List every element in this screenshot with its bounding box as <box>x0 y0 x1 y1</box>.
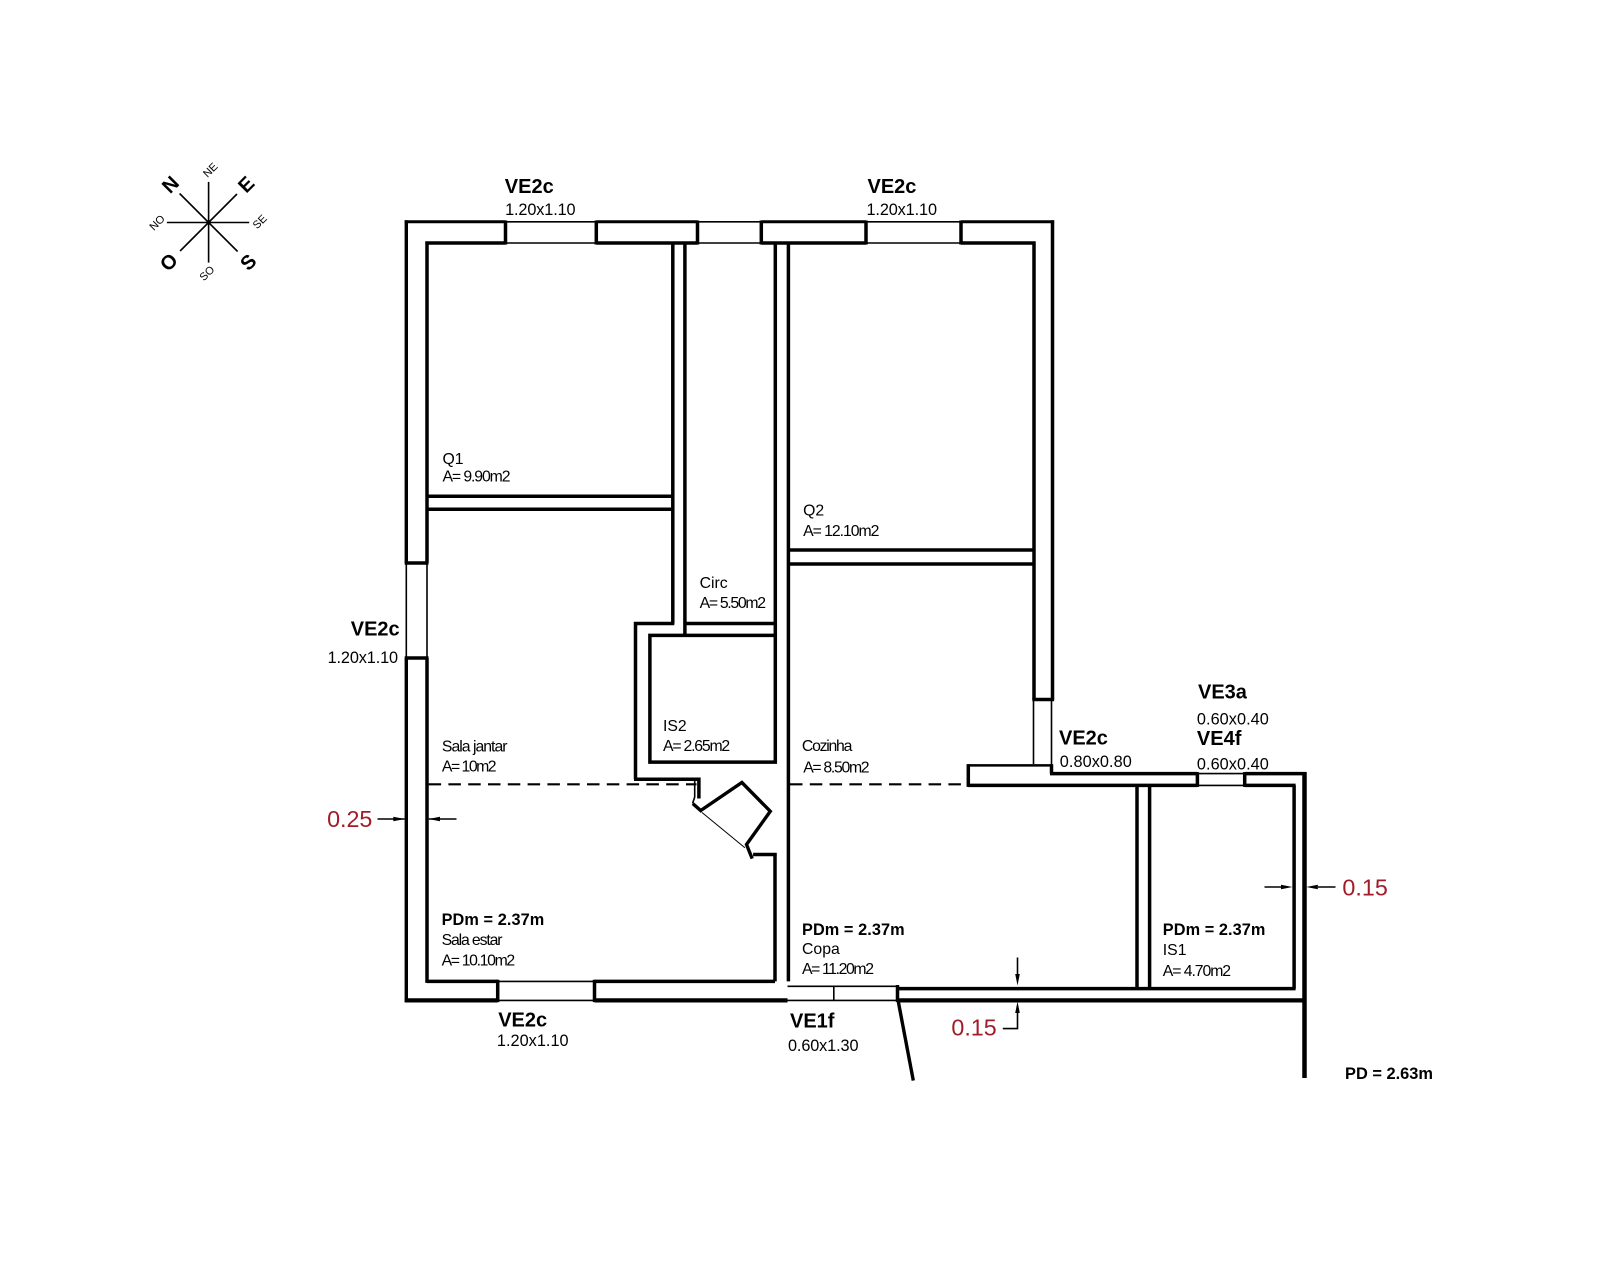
svg-text:PDm = 2.37m: PDm = 2.37m <box>802 921 905 939</box>
svg-text:A= 11.20m2: A= 11.20m2 <box>802 961 874 978</box>
svg-text:Sala estar: Sala estar <box>442 932 503 949</box>
svg-text:NO: NO <box>148 213 168 233</box>
svg-text:S: S <box>236 250 261 275</box>
svg-text:A= 5.50m2: A= 5.50m2 <box>700 595 766 612</box>
svg-text:A= 2.65m2: A= 2.65m2 <box>663 738 730 755</box>
svg-text:0.80x0.80: 0.80x0.80 <box>1060 753 1132 771</box>
svg-text:VE2c: VE2c <box>505 176 554 198</box>
svg-text:NE: NE <box>201 161 220 180</box>
svg-text:1.20x1.10: 1.20x1.10 <box>328 649 399 667</box>
svg-text:1.20x1.10: 1.20x1.10 <box>867 201 938 219</box>
svg-text:0.15: 0.15 <box>951 1015 996 1041</box>
svg-text:1.20x1.10: 1.20x1.10 <box>505 201 575 219</box>
svg-text:A= 9.90m2: A= 9.90m2 <box>443 469 511 486</box>
svg-text:0.25: 0.25 <box>327 806 372 832</box>
svg-text:IS1: IS1 <box>1163 942 1187 959</box>
svg-text:PDm = 2.37m: PDm = 2.37m <box>1163 921 1266 939</box>
svg-text:SE: SE <box>251 213 270 232</box>
svg-text:0.15: 0.15 <box>1342 875 1388 901</box>
svg-text:VE3a: VE3a <box>1198 682 1248 704</box>
svg-text:VE4f: VE4f <box>1197 728 1242 750</box>
svg-text:VE2c: VE2c <box>1059 728 1108 750</box>
svg-text:Cozinha: Cozinha <box>802 738 853 755</box>
svg-text:VE2c: VE2c <box>498 1010 547 1032</box>
svg-text:SO: SO <box>198 264 218 284</box>
svg-text:A= 4.70m2: A= 4.70m2 <box>1163 963 1231 980</box>
svg-text:0.60x1.30: 0.60x1.30 <box>788 1037 859 1055</box>
svg-text:Q1: Q1 <box>443 451 464 468</box>
svg-text:0.60x0.40: 0.60x0.40 <box>1197 711 1269 729</box>
svg-text:A= 8.50m2: A= 8.50m2 <box>803 759 869 776</box>
svg-text:VE1f: VE1f <box>790 1011 835 1033</box>
svg-text:PD = 2.63m: PD = 2.63m <box>1345 1065 1433 1083</box>
svg-text:A= 10m2: A= 10m2 <box>442 759 497 776</box>
svg-text:Sala jantar: Sala jantar <box>442 739 508 756</box>
svg-text:A= 10.10m2: A= 10.10m2 <box>442 953 516 970</box>
svg-text:VE2c: VE2c <box>351 619 400 641</box>
svg-text:A= 12.10m2: A= 12.10m2 <box>803 523 879 540</box>
svg-text:Copa: Copa <box>802 941 840 958</box>
svg-text:PDm = 2.37m: PDm = 2.37m <box>442 911 545 929</box>
svg-text:1.20x1.10: 1.20x1.10 <box>497 1032 569 1050</box>
svg-text:E: E <box>234 173 259 198</box>
svg-text:O: O <box>156 249 183 276</box>
svg-text:VE2c: VE2c <box>868 176 917 198</box>
svg-text:IS2: IS2 <box>663 718 687 735</box>
svg-text:Circ: Circ <box>700 575 728 592</box>
svg-text:0.60x0.40: 0.60x0.40 <box>1197 755 1269 773</box>
svg-text:Q2: Q2 <box>803 503 824 520</box>
